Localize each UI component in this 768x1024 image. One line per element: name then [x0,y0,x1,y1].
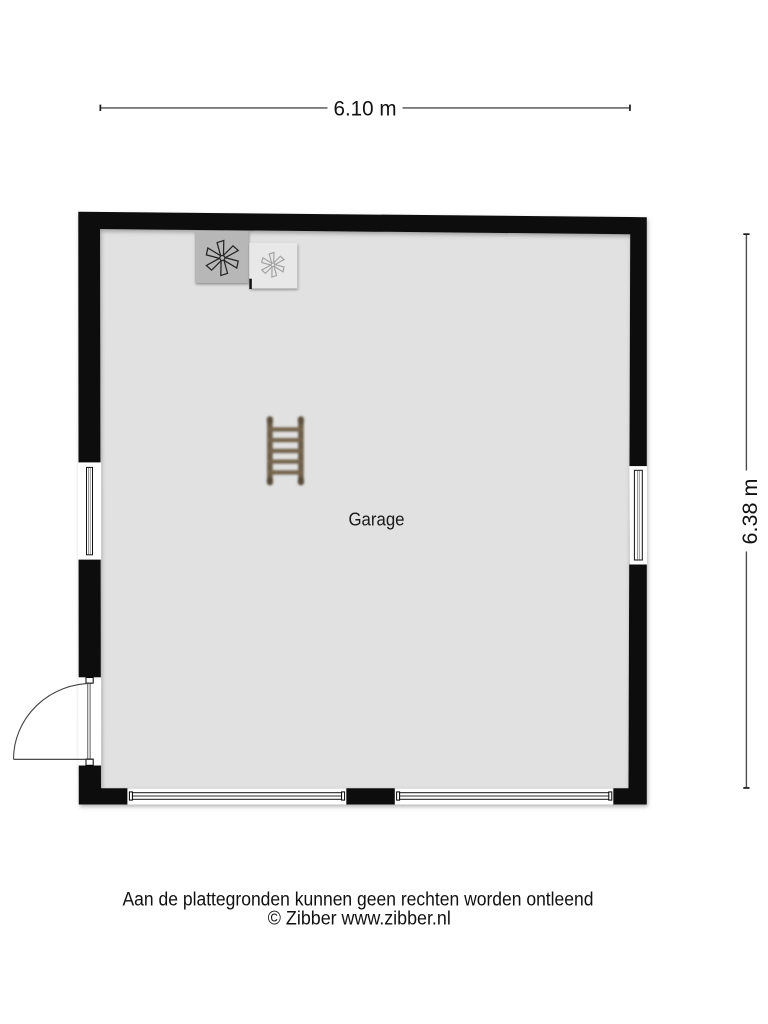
svg-text:6.10 m: 6.10 m [334,98,397,121]
svg-text:© Zibber www.zibber.nl: © Zibber www.zibber.nl [268,908,451,930]
svg-text:6.38 m: 6.38 m [739,479,762,545]
svg-text:Garage: Garage [349,508,405,529]
